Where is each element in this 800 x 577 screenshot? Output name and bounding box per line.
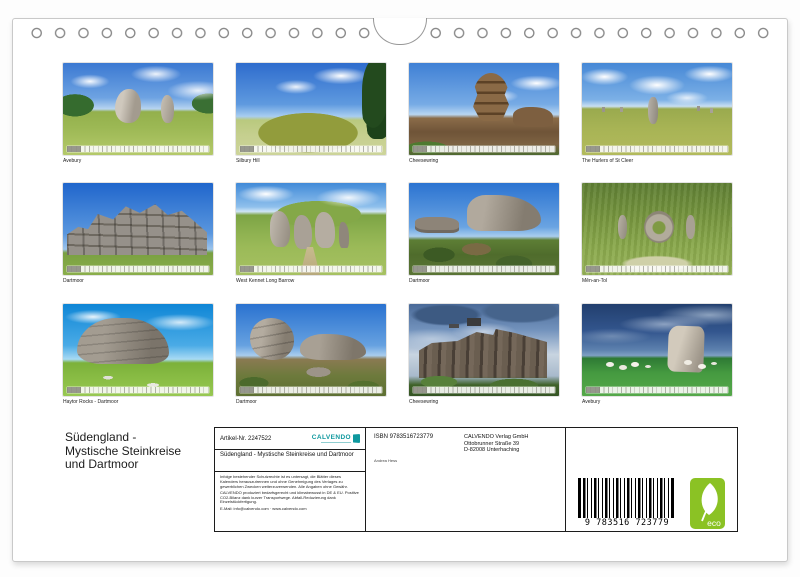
thumb-caption: Avebury bbox=[63, 158, 213, 164]
title-line: Südengland - bbox=[65, 431, 181, 445]
date-grid-strip bbox=[67, 387, 209, 394]
thumb-photo-cheesewring-stack bbox=[409, 63, 559, 155]
thumb-photo-silbury-hill bbox=[236, 63, 386, 155]
thumb-caption: The Hurlers of St Cleer bbox=[582, 158, 732, 164]
thumb-caption: West Kennet Long Barrow bbox=[236, 278, 386, 284]
thumb-caption: Dartmoor bbox=[409, 278, 559, 284]
calendar-title: Südengland - Mystische Steinkreise und D… bbox=[65, 431, 181, 472]
thumb-photo-dartmoor-tor bbox=[63, 183, 213, 275]
eco-badge: eco bbox=[690, 478, 725, 529]
date-grid-strip bbox=[240, 387, 382, 394]
contact-line: E-Mail: info@calvendo.com · www.calvendo… bbox=[220, 507, 360, 512]
barcode-block: 9 783516 723779 bbox=[578, 478, 676, 528]
month-thumb: The Hurlers of St Cleer bbox=[582, 63, 732, 164]
calvendo-tagline bbox=[321, 442, 351, 444]
month-thumb: West Kennet Long Barrow bbox=[236, 183, 386, 284]
eco-note: CALVENDO produziert bedarfsgerecht und k… bbox=[220, 491, 360, 505]
publisher-line: D-82008 Unterhaching bbox=[464, 447, 528, 454]
month-thumb: Haytor Rocks - Dartmoor bbox=[63, 304, 213, 405]
info-table: Artikel-Nr. 2247522 CALVENDO Südengland … bbox=[214, 427, 738, 532]
thumb-caption: Cheesewring bbox=[409, 158, 559, 164]
calendar-title-cell: Südengland - Mystische Steinkreise und D… bbox=[215, 450, 365, 472]
article-number: Artikel-Nr. 2247522 bbox=[220, 436, 271, 442]
month-thumb: Dartmoor bbox=[409, 183, 559, 284]
thumb-photo-west-kennet bbox=[236, 183, 386, 275]
barcode-digits: 9 783516 723779 bbox=[578, 518, 676, 528]
calvendo-logo-text: CALVENDO bbox=[312, 434, 351, 441]
isbn: ISBN 9783516723779 bbox=[374, 434, 433, 440]
binding-holes-right bbox=[424, 26, 775, 40]
title-line: und Dartmoor bbox=[65, 458, 181, 472]
month-thumb: Dartmoor bbox=[236, 304, 386, 405]
month-thumb: Avebury bbox=[63, 63, 213, 164]
date-grid-strip bbox=[413, 146, 555, 153]
date-grid-strip bbox=[586, 146, 728, 153]
thumb-caption: Avebury bbox=[582, 399, 732, 405]
month-thumb: Mên-an-Tol bbox=[582, 183, 732, 284]
legal-block: Infolge bestehender Schutzrechte ist es … bbox=[215, 472, 365, 516]
date-grid-strip bbox=[240, 266, 382, 273]
info-middle-column: ISBN 9783516723779 Andrea Hess CALVENDO … bbox=[366, 428, 566, 531]
thumb-photo-dartmoor-boulders bbox=[236, 304, 386, 396]
calvendo-logo-icon bbox=[353, 434, 360, 443]
info-left-column: Artikel-Nr. 2247522 CALVENDO Südengland … bbox=[215, 428, 366, 531]
date-grid-strip bbox=[67, 146, 209, 153]
date-grid-strip bbox=[67, 266, 209, 273]
publisher-address: CALVENDO Verlag GmbH Ottobrunner Straße … bbox=[464, 434, 528, 454]
thumb-photo-avebury-sheep bbox=[582, 304, 732, 396]
month-thumb: Dartmoor bbox=[63, 183, 213, 284]
title-line: Mystische Steinkreise bbox=[65, 445, 181, 459]
thumb-caption: Cheesewring bbox=[409, 399, 559, 405]
leaf-icon: eco bbox=[690, 478, 725, 529]
article-row: Artikel-Nr. 2247522 CALVENDO bbox=[215, 428, 365, 450]
hanger-notch bbox=[373, 18, 427, 45]
thumb-photo-hurlers bbox=[582, 63, 732, 155]
thumb-caption: Silbury Hill bbox=[236, 158, 386, 164]
calvendo-wordmark: CALVENDO bbox=[312, 434, 351, 444]
month-thumb: Avebury bbox=[582, 304, 732, 405]
month-thumb: Cheesewring bbox=[409, 63, 559, 164]
thumb-photo-men-an-tol bbox=[582, 183, 732, 275]
month-thumb: Cheesewring bbox=[409, 304, 559, 405]
legal-text: Infolge bestehender Schutzrechte ist es … bbox=[220, 475, 360, 489]
month-thumb: Silbury Hill bbox=[236, 63, 386, 164]
date-grid-strip bbox=[413, 266, 555, 273]
thumb-photo-avebury-stones bbox=[63, 63, 213, 155]
calvendo-logo: CALVENDO bbox=[312, 434, 360, 444]
eco-label: eco bbox=[707, 518, 721, 528]
date-grid-strip bbox=[586, 387, 728, 394]
thumb-caption: Dartmoor bbox=[236, 399, 386, 405]
barcode bbox=[578, 478, 674, 518]
thumb-caption: Mên-an-Tol bbox=[582, 278, 732, 284]
thumb-caption: Haytor Rocks - Dartmoor bbox=[63, 399, 213, 405]
info-right-column: 9 783516 723779 eco bbox=[566, 428, 739, 531]
thumb-photo-cheesewring-quarry bbox=[409, 304, 559, 396]
date-grid-strip bbox=[586, 266, 728, 273]
date-grid-strip bbox=[240, 146, 382, 153]
binding-holes-left bbox=[25, 26, 376, 40]
calendar-back-page: Avebury Silbury Hill Cheesewring The Hur… bbox=[12, 18, 788, 562]
thumb-photo-dartmoor-rock bbox=[409, 183, 559, 275]
thumb-photo-haytor-rocks bbox=[63, 304, 213, 396]
publisher-line: CALVENDO Verlag GmbH bbox=[464, 434, 528, 441]
thumb-caption: Dartmoor bbox=[63, 278, 213, 284]
author-credit: Andrea Hess bbox=[374, 458, 397, 463]
date-grid-strip bbox=[413, 387, 555, 394]
